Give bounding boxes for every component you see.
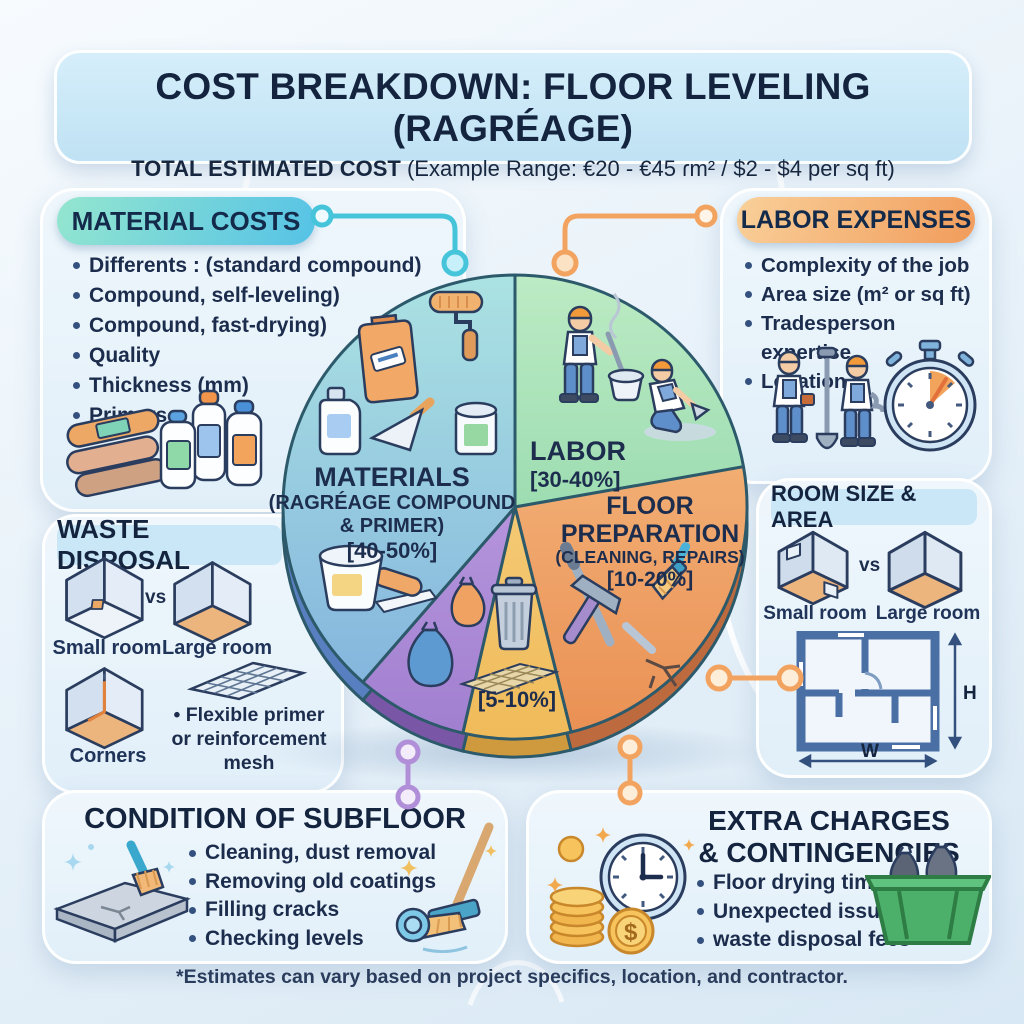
waste-skip-icon [865,843,991,955]
list-item: Differents : (standard compound) [69,251,422,281]
vs-label: vs [859,555,880,577]
extra-charges-header-line1: EXTRA CHARGES [689,805,969,837]
large-room-label: Large room [869,603,987,625]
title-card: COST BREAKDOWN: FLOOR LEVELING (RAGRÉAGE… [54,50,972,164]
vs-label: vs [145,587,166,609]
small-room-label: Small room [759,603,871,625]
dollar-coin-symbol: $ [624,919,638,946]
primer-bottles-icon [153,389,273,503]
small-room-label: Small room [49,637,165,660]
waste-disposal-panel: WASTE DISPOSAL vs Small room Large room [42,514,344,794]
list-item: Compound, fast-drying) [69,311,422,341]
labor-expenses-panel: LABOR EXPENSES Complexity of the job Are… [720,188,992,484]
infographic-canvas: COST BREAKDOWN: FLOOR LEVELING (RAGRÉAGE… [0,0,1024,1024]
coins-clock-icon: $ [543,819,703,955]
subtitle-rest: (Example Range: €20 - €45 ɾm² / $2 - $4 … [401,156,895,181]
floor-plan-icon: H W [795,631,983,769]
mesh-icon [187,655,307,703]
page-subtitle: TOTAL ESTIMATED COST (Example Range: €20… [57,156,969,182]
room-size-panel: ROOM SIZE & AREA vs Small room Large roo… [756,478,992,778]
list-item: Complexity of the job [741,251,989,280]
list-item: Area size (m² or sq ft) [741,280,989,309]
stopwatch-icon [875,339,985,461]
worker-1 [773,352,814,442]
page-title: COST BREAKDOWN: FLOOR LEVELING (RAGRÉAGE… [57,66,969,150]
room-size-header: ROOM SIZE & AREA [771,489,977,525]
extra-charges-panel: EXTRA CHARGES & CONTINGENCIES Floor dryi… [526,790,992,964]
small-room-plan-icon [773,529,853,607]
mesh-bullet: • Flexible primer or reinforcement mesh [163,703,335,775]
mesh-bullet-text: Flexible primer or reinforcement mesh [172,704,327,774]
workers-icon [763,346,893,474]
condition-subfloor-panel: CONDITION OF SUBFLOOR Cleaning, dust rem… [42,790,508,964]
corners-icon [63,665,149,751]
material-costs-panel: MATERIAL COSTS Differents : (standard co… [40,188,466,512]
corners-label: Corners [53,745,163,768]
bottle-left [161,411,195,488]
height-label: H [963,683,977,704]
large-room-plan-icon [883,529,967,611]
labor-expenses-header: LABOR EXPENSES [737,197,975,243]
bottle-right [227,401,261,485]
width-label: W [861,741,879,762]
list-item: Compound, self-leveling) [69,281,422,311]
large-room-icon [171,559,257,645]
bottle-mid [193,391,225,480]
list-item: Quality [69,341,422,371]
footer-note: *Estimates can vary based on project spe… [0,966,1024,989]
brush-slab-icon [53,835,193,955]
broom-roller-icon [393,821,505,953]
subtitle-bold: TOTAL ESTIMATED COST [131,156,401,181]
material-costs-header: MATERIAL COSTS [57,197,315,245]
small-room-icon [63,555,149,641]
